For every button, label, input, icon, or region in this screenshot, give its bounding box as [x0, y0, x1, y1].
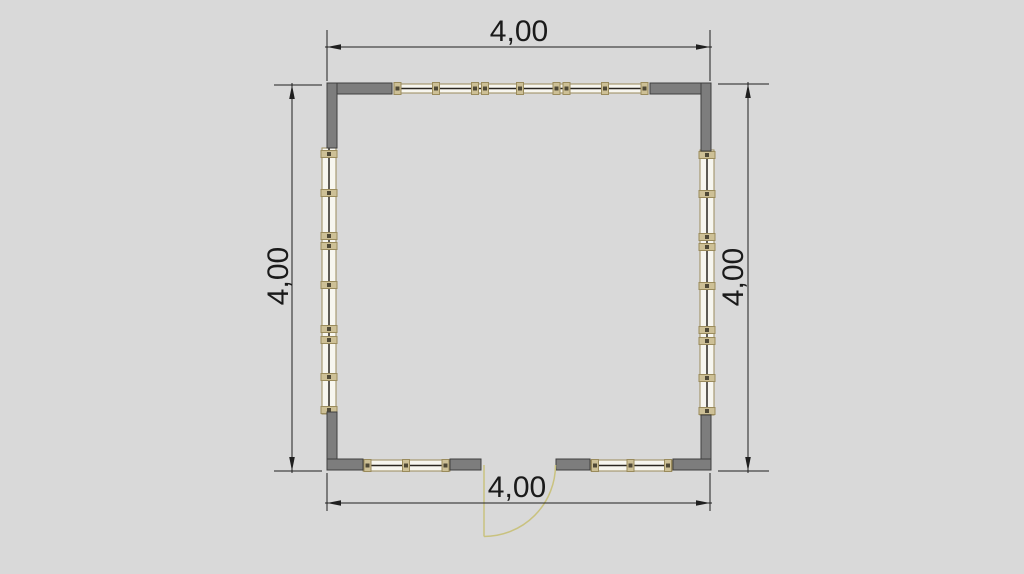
window-strip-bottom-left — [363, 460, 450, 472]
window-mullion — [321, 282, 337, 289]
window-mullion — [403, 460, 410, 472]
dimension-label-top: 4,00 — [490, 15, 548, 48]
floor-plan-canvas: 4,00 4,00 4,00 4,00 — [0, 0, 1024, 574]
floor-plan-drawing: 4,00 4,00 4,00 4,00 — [0, 0, 1024, 574]
window-mullion — [321, 374, 337, 381]
window-mullion — [665, 460, 672, 472]
dimension-label-bottom: 4,00 — [488, 471, 546, 504]
window-mullion — [602, 83, 609, 95]
dimension-arrow-top — [289, 85, 295, 99]
dimension-arrow-right — [696, 500, 710, 506]
window-mullion — [641, 83, 648, 95]
walls — [327, 83, 711, 470]
wall-segment-top-right-v — [701, 83, 711, 151]
window-mullion — [699, 375, 715, 382]
wall-segment-door-left-jamb — [450, 459, 481, 470]
dimension-arrow-top — [745, 84, 751, 98]
window-mullion — [321, 190, 337, 197]
dimension-arrow-bottom — [289, 457, 295, 471]
dimension-right: 4,00 — [717, 82, 769, 473]
window-mullion — [699, 338, 715, 345]
window-mullion — [321, 337, 337, 344]
dimension-label-left: 4,00 — [262, 247, 295, 305]
wall-segment-top-left-v — [327, 83, 337, 148]
window-strip-right — [699, 150, 715, 415]
dimension-arrow-bottom — [745, 457, 751, 471]
dimension-bottom: 4,00 — [325, 471, 712, 511]
window-mullion — [321, 233, 337, 240]
window-mullion — [699, 244, 715, 251]
wall-segment-bottom-left-h — [327, 459, 363, 470]
dimension-label-right: 4,00 — [717, 248, 750, 306]
window-mullion — [321, 326, 337, 333]
window-mullion — [699, 408, 715, 415]
dimension-arrow-left — [327, 44, 341, 50]
wall-segment-bottom-right-h — [673, 459, 711, 470]
dimension-top: 4,00 — [325, 15, 712, 81]
window-mullion — [433, 83, 440, 95]
window-strip-top — [394, 83, 648, 95]
dimension-arrow-left — [327, 500, 341, 506]
window-mullion — [699, 283, 715, 290]
window-mullion — [592, 460, 599, 472]
window-mullion — [563, 83, 570, 95]
window-mullion — [442, 460, 449, 472]
window-mullion — [472, 83, 479, 95]
window-mullion — [627, 460, 634, 472]
window-mullion — [364, 460, 371, 472]
window-mullion — [482, 83, 489, 95]
window-mullion — [321, 243, 337, 250]
window-mullion — [699, 152, 715, 159]
window-mullion — [699, 234, 715, 241]
window-mullion — [394, 83, 401, 95]
window-mullion — [699, 327, 715, 334]
wall-segment-door-right-jamb — [556, 459, 590, 470]
window-strip-left — [321, 148, 337, 414]
window-mullion — [321, 151, 337, 158]
window-mullion — [517, 83, 524, 95]
window-strip-bottom-right — [591, 460, 672, 472]
window-mullion — [553, 83, 560, 95]
dimension-arrow-right — [696, 44, 710, 50]
window-mullion — [699, 191, 715, 198]
dimension-left: 4,00 — [262, 83, 322, 473]
